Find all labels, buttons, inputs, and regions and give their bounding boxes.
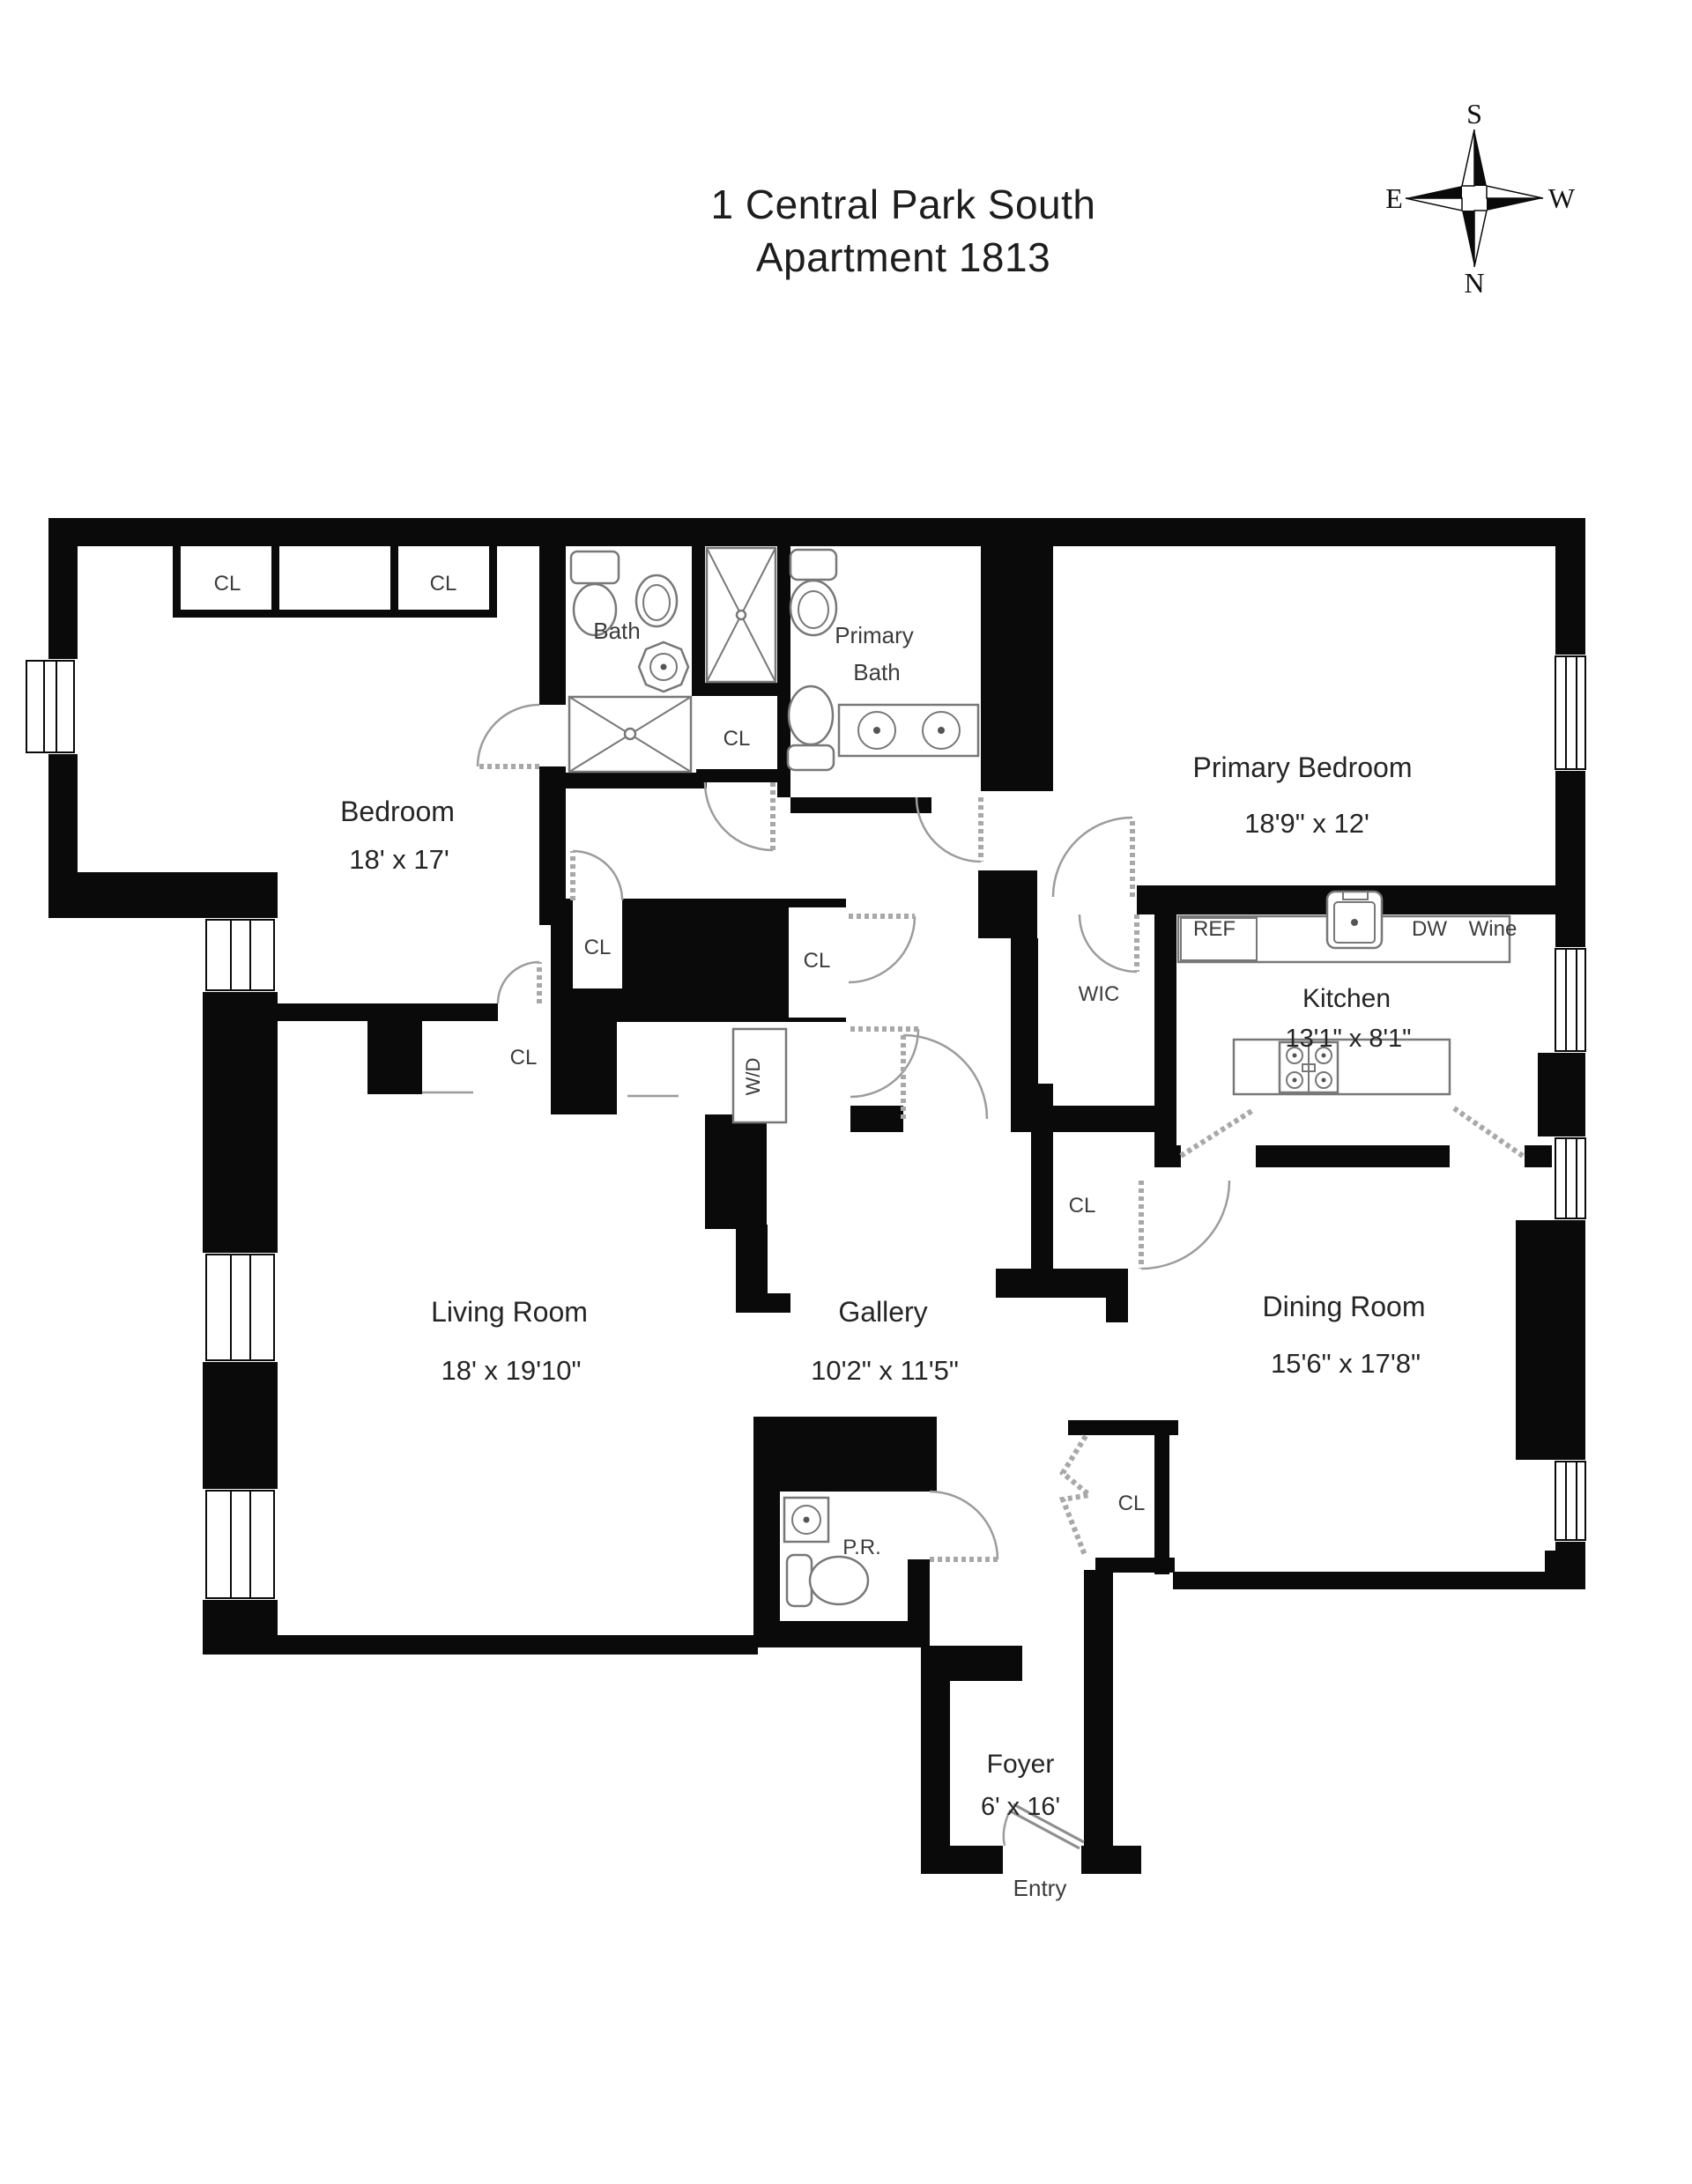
door-swing-icon [478, 705, 539, 766]
door-leaf-icon [1181, 1110, 1253, 1156]
wine-fridge-label: Wine [1469, 917, 1518, 941]
window-icon [1552, 947, 1589, 1053]
compass-west-label: W [1548, 182, 1576, 214]
bedroom-label: Bedroom [340, 796, 455, 827]
primary-bedroom-label: Primary Bedroom [1193, 751, 1413, 783]
floor-plan-drawing: 1 Central Park South Apartment 1813 S N … [0, 0, 1692, 2184]
room-labels: Bedroom 18' x 17' Primary Bedroom 18'9" … [214, 572, 1518, 1901]
gallery-label: Gallery [838, 1296, 927, 1328]
powder-room-label: P.R. [842, 1536, 881, 1559]
kitchen-label: Kitchen [1302, 984, 1391, 1013]
window-icon [1552, 1136, 1589, 1220]
sink-icon [784, 1498, 828, 1542]
hall-closet-label-left: CL [584, 936, 612, 959]
door-swing-icon [1053, 818, 1132, 897]
toilet-icon [636, 575, 677, 626]
floor-plan-page: 1 Central Park South Apartment 1813 S N … [0, 0, 1692, 2184]
gallery-closet-label: CL [1069, 1194, 1096, 1218]
shower-stall-icon [707, 548, 775, 682]
living-closet-label: CL [510, 1046, 538, 1070]
toilet-icon [790, 550, 836, 635]
window-icon [201, 1253, 279, 1362]
bath-label: Bath [593, 618, 641, 644]
door-swing-icon [705, 782, 773, 850]
compass-south-label: S [1466, 98, 1482, 130]
primary-bedroom-dims: 18'9" x 12' [1244, 808, 1369, 839]
toilet-icon [788, 686, 834, 770]
fridge-label: REF [1193, 917, 1236, 941]
window-icon [1552, 1460, 1589, 1542]
washer-dryer-label: W/D [742, 1058, 764, 1096]
shower-icon [569, 697, 691, 772]
wic-label: WIC [1079, 982, 1120, 1006]
bedroom-closet-label-2: CL [430, 572, 457, 596]
bedroom-closet-label-1: CL [214, 572, 241, 596]
living-room-dims: 18' x 19'10" [441, 1355, 581, 1386]
dining-room-label: Dining Room [1263, 1291, 1426, 1322]
window-icon [201, 1489, 279, 1600]
door-swing-icon [573, 851, 622, 900]
bedroom-dims: 18' x 17' [349, 844, 449, 875]
primary-bath-label-2: Bath [853, 659, 901, 685]
door-swing-icon [849, 916, 915, 982]
dishwasher-label: DW [1412, 917, 1447, 941]
entry-label: Entry [1013, 1875, 1067, 1901]
toilet-icon [787, 1555, 868, 1606]
closet-lines [422, 1092, 679, 1096]
compass-north-label: N [1464, 267, 1484, 299]
foyer-dims: 6' x 16' [981, 1793, 1060, 1821]
primary-bath-label-1: Primary [835, 622, 914, 648]
kitchen-dims: 13'1" x 8'1" [1286, 1025, 1412, 1053]
plan-title-address: 1 Central Park South [710, 181, 1095, 227]
bifold-door-icon [1063, 1436, 1089, 1555]
door-leaf-icon [1454, 1108, 1523, 1156]
kitchen-sink-icon [1327, 892, 1382, 948]
corner-sink-icon [639, 642, 688, 692]
foyer-label: Foyer [987, 1750, 1055, 1779]
gallery-dims: 10'2" x 11'5" [811, 1355, 959, 1386]
door-swing-icon [930, 1492, 998, 1559]
living-room-label: Living Room [431, 1296, 588, 1328]
door-swing-icon [1141, 1181, 1229, 1269]
double-vanity-icon [839, 705, 978, 756]
window-icon [1552, 655, 1589, 771]
compass-rose-icon: S N E W [1385, 98, 1576, 299]
door-swing-icon [498, 962, 539, 1003]
door-swing-icon [850, 1029, 918, 1097]
plan-title-apartment: Apartment 1813 [756, 234, 1050, 280]
window-icon [201, 918, 279, 992]
hall-closet-label-right: CL [804, 949, 831, 973]
dining-room-dims: 15'6" x 17'8" [1271, 1348, 1421, 1379]
window-icon [23, 659, 78, 754]
bath-closet-label: CL [724, 727, 751, 751]
door-swing-icon [1080, 914, 1137, 972]
dining-closet-label: CL [1118, 1492, 1146, 1515]
compass-east-label: E [1385, 182, 1403, 214]
